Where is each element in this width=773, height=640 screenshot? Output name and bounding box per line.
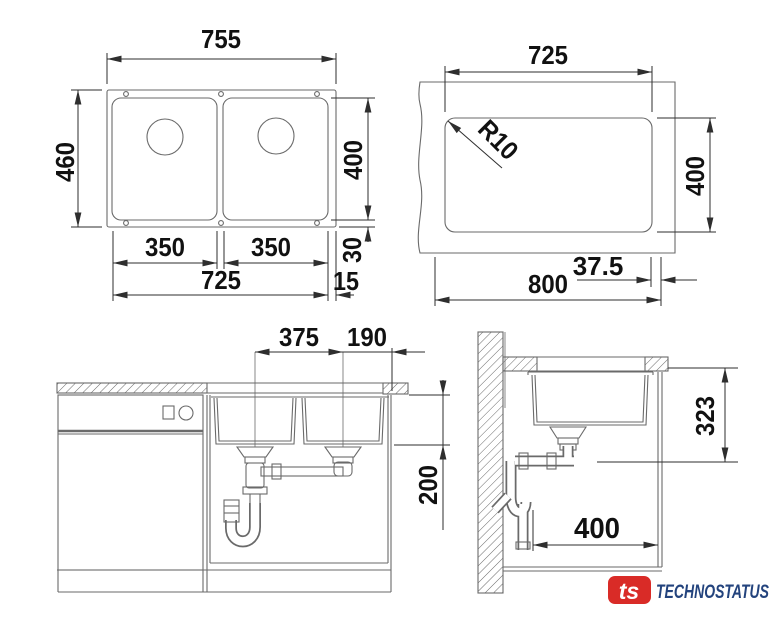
bowl-section — [532, 375, 648, 425]
dim-overall-depth: 460 — [50, 142, 80, 182]
dim-overall-width: 755 — [201, 24, 241, 54]
sink-outline — [107, 90, 336, 227]
wall-section — [478, 332, 503, 593]
dim-left-bowl-width: 350 — [145, 232, 185, 262]
dim-bowls-span: 725 — [201, 265, 241, 295]
brand-logo: ts TECHNOSTATUS — [608, 576, 769, 604]
dim-edge-margin: 37.5 — [573, 251, 624, 281]
fixing-hole — [124, 92, 129, 97]
control-panel-switch — [163, 406, 174, 419]
counter-section-left — [57, 383, 207, 393]
cutout-view: 725 R10 400 37.5 800 — [418, 40, 716, 306]
left-strainer — [237, 447, 273, 457]
wall-outlet-coupling — [224, 500, 239, 522]
counter-section-front — [645, 357, 668, 371]
strainer — [550, 427, 586, 438]
counter-section-wall-side — [503, 357, 537, 371]
right-drain-hole — [258, 118, 294, 154]
side-section-view: 323 400 — [478, 332, 738, 593]
dim-cutout-depth: 400 — [680, 156, 710, 196]
dishwasher-cabinet — [58, 395, 203, 570]
fixing-hole — [315, 221, 320, 226]
ts-logo-monogram: ts — [619, 578, 639, 604]
dim-min-width: 800 — [528, 269, 568, 299]
right-strainer — [325, 447, 361, 457]
dim-corner-radius: R10 — [472, 113, 524, 165]
dim-drain-offset: 400 — [574, 513, 620, 545]
fixing-hole — [124, 221, 129, 226]
dim-depth-below-top: 200 — [413, 465, 443, 505]
dim-drain-spacing: 375 — [279, 322, 319, 352]
countertop-outline — [418, 82, 675, 253]
left-bowl — [112, 98, 217, 220]
left-drain-hole — [147, 119, 183, 155]
fixing-hole — [219, 221, 224, 226]
dim-bowl-depth: 400 — [338, 140, 368, 180]
dim-installation-depth: 323 — [690, 396, 720, 436]
dim-side-gap: 15 — [333, 266, 359, 296]
fixing-hole — [315, 92, 320, 97]
dim-drain-to-edge: 190 — [347, 322, 387, 352]
sink-technical-drawing: 755 460 400 30 15 350 350 725 725 — [0, 0, 773, 640]
dim-right-bowl-width: 350 — [251, 232, 291, 262]
front-section-view: 375 190 200 — [57, 322, 450, 592]
right-bowl — [223, 98, 328, 220]
technical-drawing-page: 755 460 400 30 15 350 350 725 725 — [0, 0, 773, 640]
fixing-hole — [219, 92, 224, 97]
dim-rear-gap: 30 — [337, 237, 367, 263]
dim-cutout-width: 725 — [528, 40, 568, 70]
counter-section-right — [383, 383, 408, 394]
plan-view: 755 460 400 30 15 350 350 725 — [50, 24, 375, 301]
connecting-pipe — [261, 467, 343, 476]
control-panel-knob — [179, 406, 193, 420]
brand-name: TECHNOSTATUS — [656, 582, 769, 603]
